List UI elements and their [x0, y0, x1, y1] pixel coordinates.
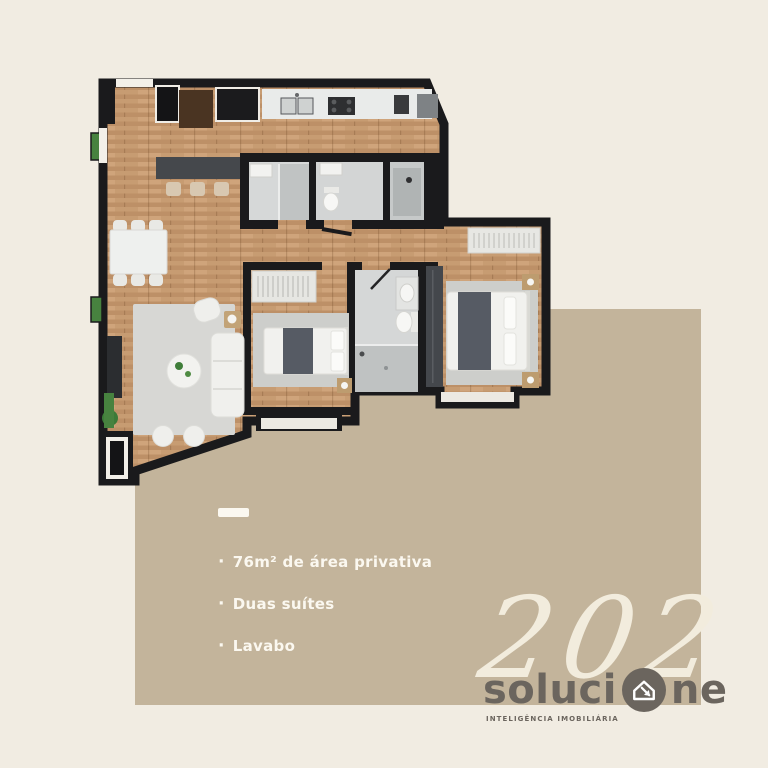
wordmark-right: ne	[671, 668, 728, 712]
suite-bathroom	[355, 269, 418, 392]
toilet-icon	[324, 187, 339, 193]
entry	[101, 431, 133, 481]
wardrobe	[252, 271, 316, 302]
cooktop-icon	[328, 97, 355, 115]
divider-dash	[218, 508, 249, 517]
info-block: · 76m² de área privativa · Duas suítes ·…	[218, 508, 432, 678]
tv-panel	[107, 336, 122, 398]
house-arrow-icon	[622, 668, 666, 712]
kitchen-island	[156, 157, 240, 196]
bullet-icon: ·	[218, 636, 225, 656]
wordmark-left: soluci	[483, 668, 617, 712]
feature-item: · Lavabo	[218, 636, 432, 656]
marketing-card: { "theme": { "background": "#f1ece2", "p…	[0, 0, 768, 768]
shower-head-icon	[406, 177, 412, 183]
feature-item: · 76m² de área privativa	[218, 552, 432, 572]
dark-wardrobe	[426, 266, 443, 387]
brand-wordmark: soluci ne	[483, 668, 728, 712]
sofa	[211, 333, 244, 417]
brand-tagline: INTELIGÊNCIA IMOBILIÁRIA	[486, 715, 728, 723]
dining-table	[110, 230, 167, 274]
coffee-table	[167, 354, 201, 388]
feature-text: Lavabo	[233, 636, 295, 656]
pouf	[153, 426, 174, 447]
feature-text: Duas suítes	[233, 594, 335, 614]
bullet-icon: ·	[218, 594, 225, 614]
bullet-icon: ·	[218, 552, 225, 572]
sink-icon	[281, 98, 296, 114]
feature-text: 76m² de área privativa	[233, 552, 432, 572]
brand-logo: soluci ne INTELIGÊNCIA IMOBILIÁRIA	[483, 668, 728, 723]
feature-list: · 76m² de área privativa · Duas suítes ·…	[218, 552, 432, 656]
entry-door	[110, 441, 124, 475]
dining-set	[110, 220, 167, 286]
feature-item: · Duas suítes	[218, 594, 432, 614]
